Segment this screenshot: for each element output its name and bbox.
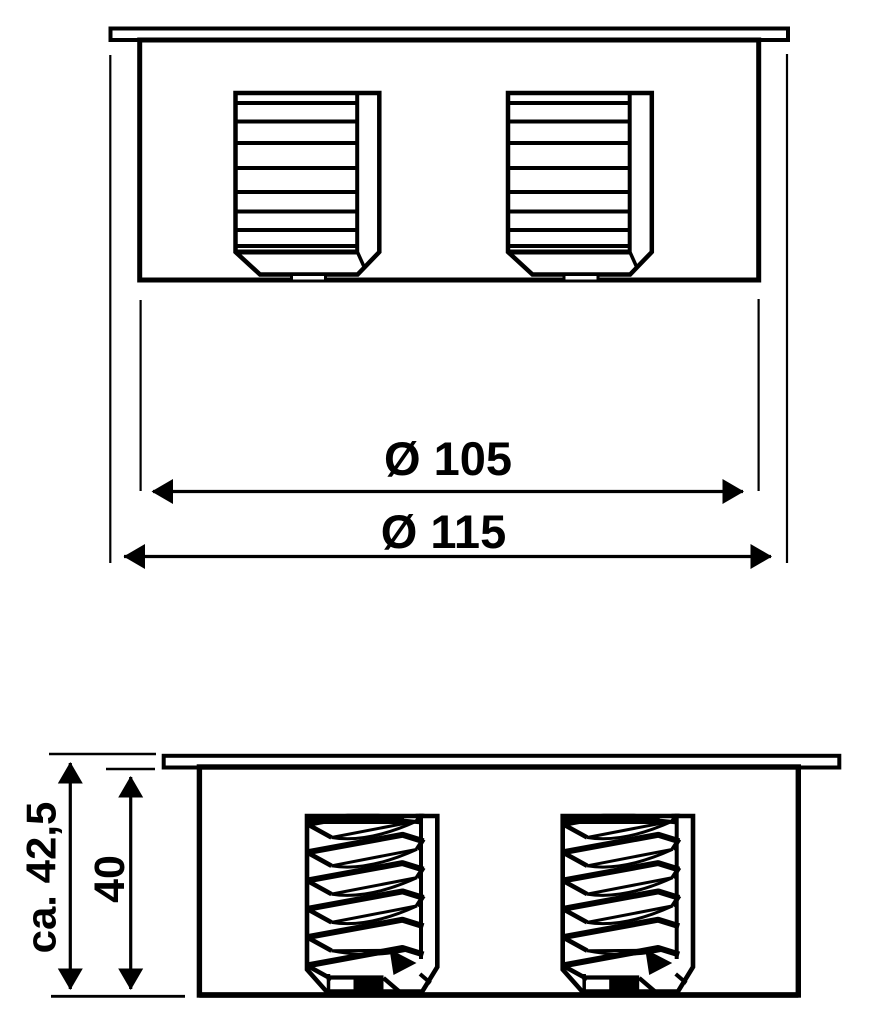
svg-text:ca. 42,5: ca. 42,5 bbox=[18, 802, 65, 954]
svg-text:Ø 115: Ø 115 bbox=[381, 505, 506, 558]
svg-text:40: 40 bbox=[86, 855, 134, 903]
svg-text:Ø 105: Ø 105 bbox=[384, 432, 512, 485]
